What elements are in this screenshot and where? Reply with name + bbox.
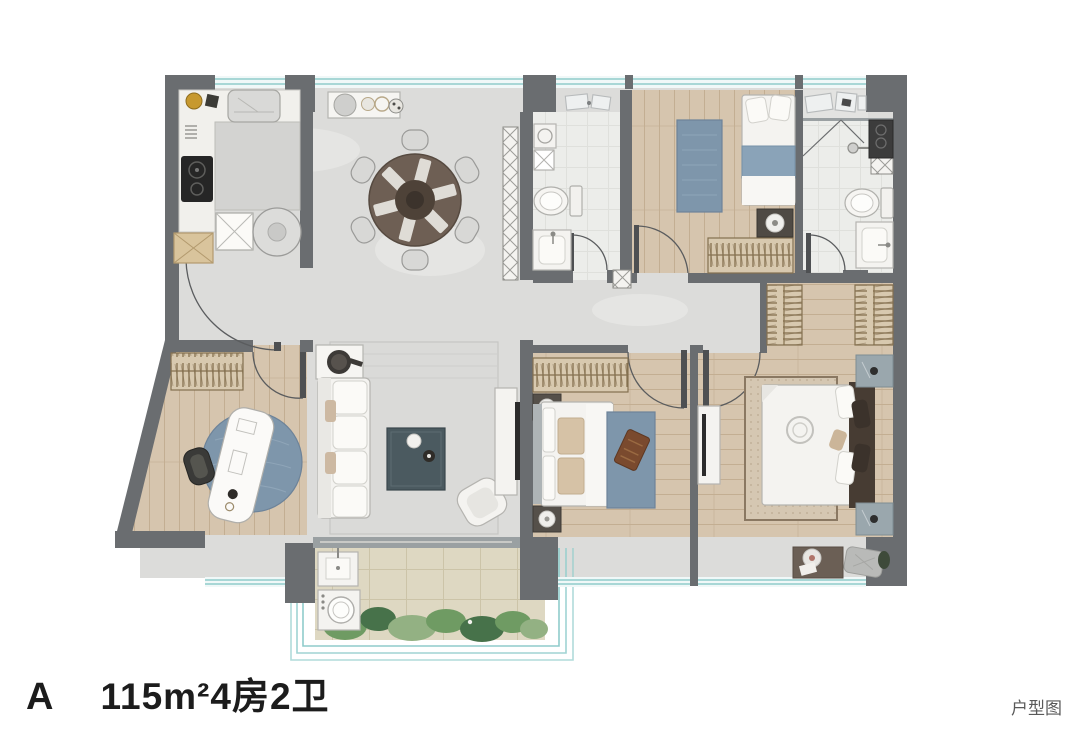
wall-bedroom-2-top — [533, 345, 628, 353]
master-nightstand-bottom — [856, 503, 893, 535]
bathroom-2-door-leaf — [806, 233, 811, 273]
bedroom-3-bed — [742, 95, 795, 205]
wall-master-closet-side — [760, 283, 767, 353]
range-hood — [228, 90, 280, 122]
table-centerpiece — [406, 191, 424, 209]
tv-console-living — [495, 388, 520, 495]
wall-right — [893, 75, 907, 586]
toilet-1 — [534, 186, 582, 216]
master-wardrobe-2 — [855, 285, 893, 345]
bedroom-3-duvet — [742, 176, 795, 205]
tv-living — [515, 402, 520, 480]
corridor-cabinet — [613, 270, 631, 288]
wall-master-top-a — [690, 345, 703, 353]
bed-cushion — [558, 418, 584, 454]
wall-top-mullion-1 — [625, 75, 633, 89]
master-nightstand-top — [856, 355, 893, 387]
wall-master-left — [690, 353, 698, 537]
bedroom-3-door-leaf — [634, 225, 639, 273]
coffee-table — [387, 428, 445, 490]
master-door-leaf — [703, 350, 709, 408]
balcony-plant-sprig — [878, 551, 890, 569]
sink-2 — [856, 222, 893, 268]
marble-vein — [592, 294, 688, 326]
unit-spec: 115m²4房2卫 — [100, 666, 329, 720]
tv-master — [702, 414, 706, 476]
kitchen-island — [215, 122, 300, 210]
window-top-dining — [315, 76, 523, 88]
window-bottom-study — [205, 577, 287, 587]
unit-label: A 115m²4房2卫 — [26, 666, 330, 720]
toilet-2 — [845, 188, 893, 218]
wall-top-pier-2 — [523, 75, 556, 112]
sink-1 — [533, 230, 571, 270]
bedroom-2-bed — [533, 402, 613, 506]
stove — [181, 156, 213, 202]
balcony-sink-unit — [318, 548, 358, 586]
bedroom-3-pillow — [745, 96, 769, 123]
master-balcony-tray — [793, 547, 843, 578]
sofa — [318, 378, 370, 518]
wall-study-top-b — [300, 340, 313, 352]
wall-living-bedroom-2 — [520, 340, 533, 537]
bedroom-2-nightstand-bottom — [533, 506, 561, 532]
wall-bathroom-2-left — [795, 90, 803, 273]
master-bed — [762, 382, 875, 508]
window-top-kitchen — [215, 76, 285, 88]
kitchen-prep-table — [216, 213, 253, 250]
study-wardrobe — [171, 353, 243, 390]
study-door-leaf — [300, 352, 306, 398]
kitchen-side-cabinet — [174, 233, 213, 263]
window-bottom-bedroom-2 — [558, 577, 690, 587]
master-wardrobe-1 — [767, 285, 802, 345]
floor-plan-page: A 115m²4房2卫 户型图 — [0, 0, 1080, 734]
bathroom-1-cabinet — [534, 150, 554, 170]
kitchen — [174, 90, 301, 263]
bedroom-2-headboard — [533, 404, 542, 504]
bedroom-3-throw — [742, 146, 795, 178]
sofa-side-table — [316, 345, 363, 379]
bedroom-2-wardrobe — [533, 358, 628, 392]
wall-bedroom-3-left — [620, 90, 632, 283]
window-top-bathroom-2 — [803, 76, 868, 88]
window-top-niche — [556, 76, 625, 88]
living-room — [316, 342, 520, 534]
bedroom-3-rug — [677, 120, 722, 212]
bedroom-2-door-leaf — [681, 350, 687, 408]
washing-machine — [318, 590, 360, 630]
wall-chunk-balcony-right — [520, 537, 558, 600]
wall-left — [165, 75, 179, 345]
wall-bathroom-2-bottom-b — [843, 270, 868, 283]
bathroom-1-washer — [534, 124, 556, 148]
sofa-pillow — [325, 452, 336, 474]
kitchen-bowl — [186, 93, 202, 109]
floor-plan-drawing — [0, 0, 1080, 734]
bedroom-3-bench — [757, 209, 793, 237]
wall-top-mullion-2 — [795, 75, 803, 89]
wall-bathroom-1-left — [520, 112, 533, 280]
sofa-pillow — [325, 400, 336, 422]
tv-console-master — [698, 406, 720, 484]
bedroom-3-wardrobe — [708, 238, 793, 273]
water-heater-cap — [268, 223, 286, 241]
bed-cushion — [558, 458, 584, 494]
caption-floor-plan: 户型图 — [1011, 694, 1062, 719]
wall-bedroom-3-bottom-b — [688, 273, 795, 283]
sideboard — [328, 92, 403, 118]
wall-chunk-balcony-left — [285, 543, 315, 603]
bathroom-2-cabinet — [871, 158, 893, 174]
wall-kitchen-right — [300, 112, 313, 268]
wall-mullion-bottom — [690, 537, 698, 586]
bedroom-3-pillow — [768, 95, 791, 122]
entry-door-leaf — [274, 342, 281, 351]
bathroom-2-counter — [869, 120, 893, 158]
window-top-bedroom-3 — [632, 76, 795, 88]
unit-letter: A — [26, 676, 54, 719]
wall-bathroom-1-bottom-a — [533, 270, 573, 283]
kitchen-board — [205, 94, 219, 108]
wall-bottom-left — [115, 531, 205, 548]
hallway-cabinet — [503, 127, 518, 280]
